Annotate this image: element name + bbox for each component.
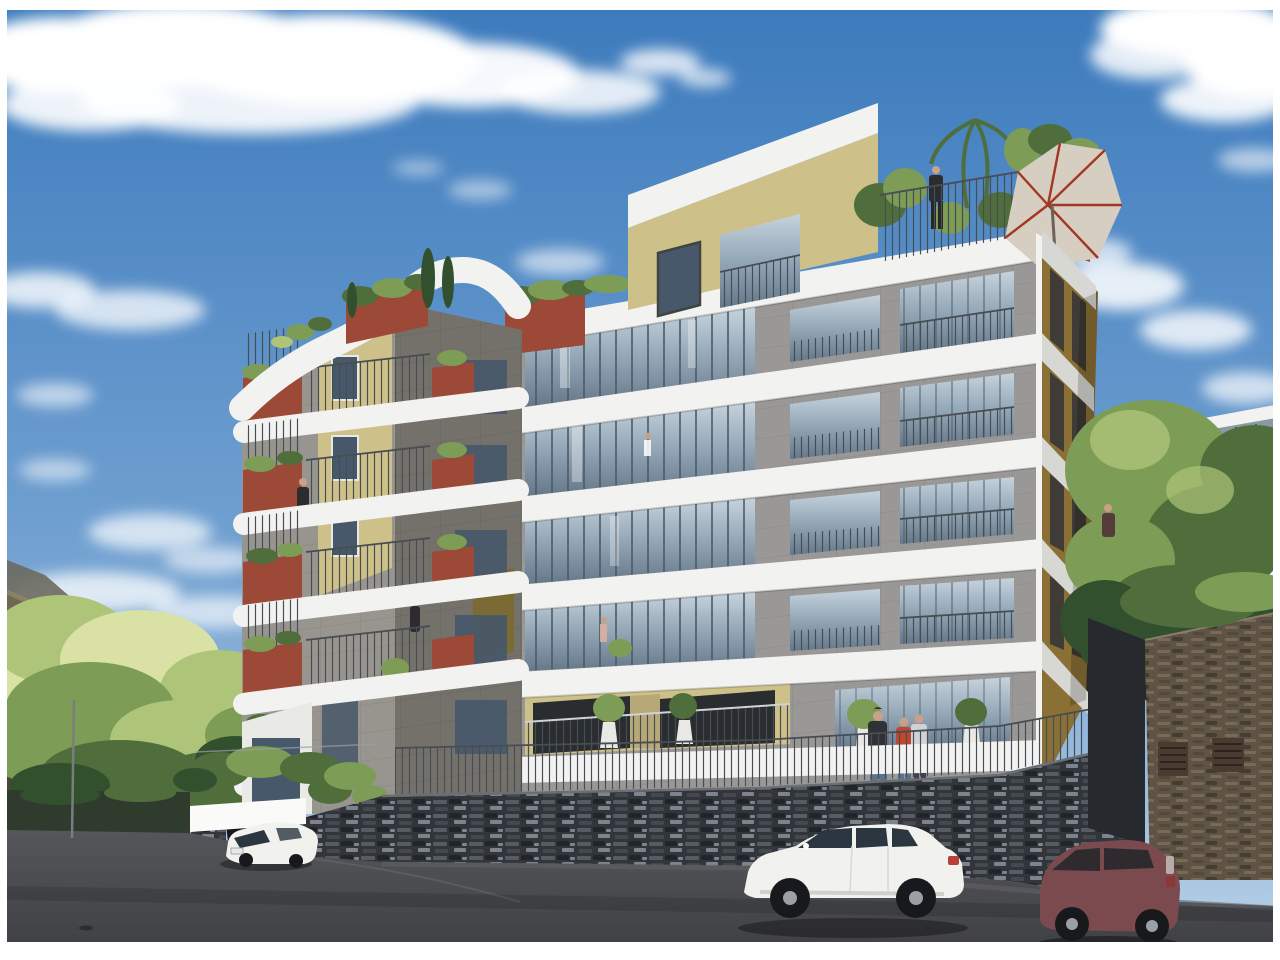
taillight — [1166, 876, 1175, 887]
cypress-tree — [442, 256, 454, 308]
cypress-tree — [421, 248, 435, 308]
left-hedge — [7, 784, 190, 836]
scene — [0, 0, 1280, 952]
manhole — [79, 926, 93, 931]
render-canvas — [0, 0, 1280, 960]
louvered-vent — [1212, 738, 1244, 772]
building-left — [242, 248, 522, 814]
louvered-vent — [1158, 742, 1188, 776]
taillight — [948, 856, 959, 865]
architectural-rendering — [0, 0, 1280, 960]
license-plate — [231, 848, 243, 854]
